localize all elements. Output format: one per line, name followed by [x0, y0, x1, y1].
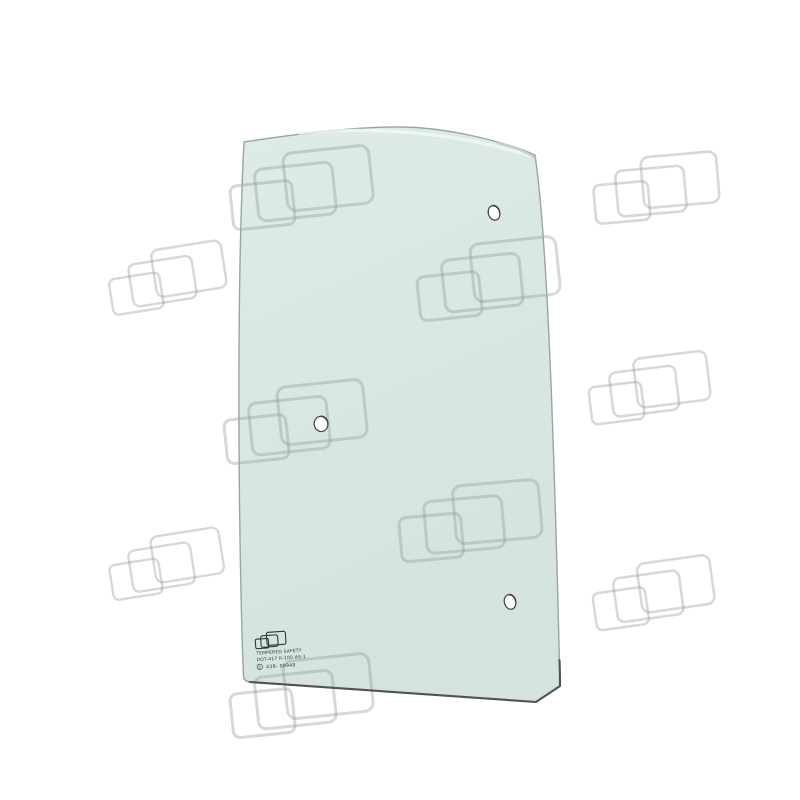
product-photo-canvas: TEMPERED SAFETY DOT-417 R-100 AS-1 E 43R…	[0, 0, 800, 800]
watermark-cluster	[585, 350, 712, 425]
watermark-rectangle	[640, 151, 720, 208]
watermark-rectangle	[633, 350, 712, 408]
glass-panel	[239, 127, 560, 702]
watermark-cluster	[591, 151, 721, 224]
watermark-cluster	[589, 554, 717, 631]
watermark-cluster	[105, 240, 229, 316]
watermark-cluster	[105, 527, 226, 601]
glass-panel-illustration: TEMPERED SAFETY DOT-417 R-100 AS-1 E 43R…	[0, 0, 800, 800]
